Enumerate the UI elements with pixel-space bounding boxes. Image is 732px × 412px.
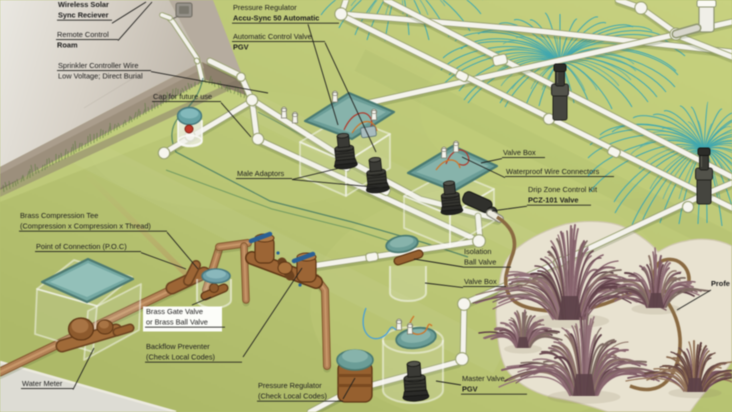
svg-text:(Check Local Codes): (Check Local Codes) — [146, 353, 215, 362]
svg-text:Waterproof Wire Connectors: Waterproof Wire Connectors — [506, 167, 600, 176]
svg-text:PGV: PGV — [462, 385, 478, 394]
svg-text:Brass Compression Tee: Brass Compression Tee — [20, 211, 98, 220]
svg-text:Cap for future use: Cap for future use — [153, 92, 212, 101]
svg-text:or Brass Ball Valve: or Brass Ball Valve — [146, 318, 208, 327]
svg-text:Drip Zone Control Kit: Drip Zone Control Kit — [528, 185, 597, 194]
svg-text:Water Meter: Water Meter — [22, 379, 63, 388]
svg-text:Sprinkler Controller Wire: Sprinkler Controller Wire — [58, 61, 139, 70]
svg-text:Isolation: Isolation — [464, 247, 492, 256]
svg-text:Roam: Roam — [57, 41, 78, 50]
svg-text:Valve Box: Valve Box — [503, 148, 536, 157]
svg-text:(Check Local Codes): (Check Local Codes) — [258, 392, 327, 401]
svg-text:Pressure Regulator: Pressure Regulator — [233, 3, 297, 12]
svg-text:Brass Gate Valve: Brass Gate Valve — [146, 307, 203, 316]
svg-text:Automatic Control Valve: Automatic Control Valve — [233, 32, 312, 41]
svg-text:Point of Connection (P.O.C): Point of Connection (P.O.C) — [36, 242, 127, 251]
svg-text:Wireless Solar: Wireless Solar — [58, 0, 109, 9]
svg-text:Backflow Preventer: Backflow Preventer — [146, 342, 210, 351]
svg-text:Male Adaptors: Male Adaptors — [237, 169, 285, 178]
svg-text:PGV: PGV — [233, 43, 249, 52]
svg-text:Low Voltage; Direct Burial: Low Voltage; Direct Burial — [58, 72, 143, 81]
svg-text:(Compression x Compression x T: (Compression x Compression x Thread) — [20, 222, 151, 231]
svg-text:Profe: Profe — [711, 279, 730, 288]
svg-text:Pressure Regulator: Pressure Regulator — [258, 381, 322, 390]
svg-text:Sync Reciever: Sync Reciever — [58, 11, 109, 20]
svg-text:Remote Control: Remote Control — [57, 30, 109, 39]
svg-text:Master Valve: Master Valve — [462, 374, 505, 383]
svg-text:Valve Box: Valve Box — [464, 277, 497, 286]
svg-text:Accu-Sync 50 Automatic: Accu-Sync 50 Automatic — [233, 14, 319, 23]
svg-text:PCZ-101 Valve: PCZ-101 Valve — [528, 196, 579, 205]
svg-text:Ball Valve: Ball Valve — [464, 258, 496, 267]
